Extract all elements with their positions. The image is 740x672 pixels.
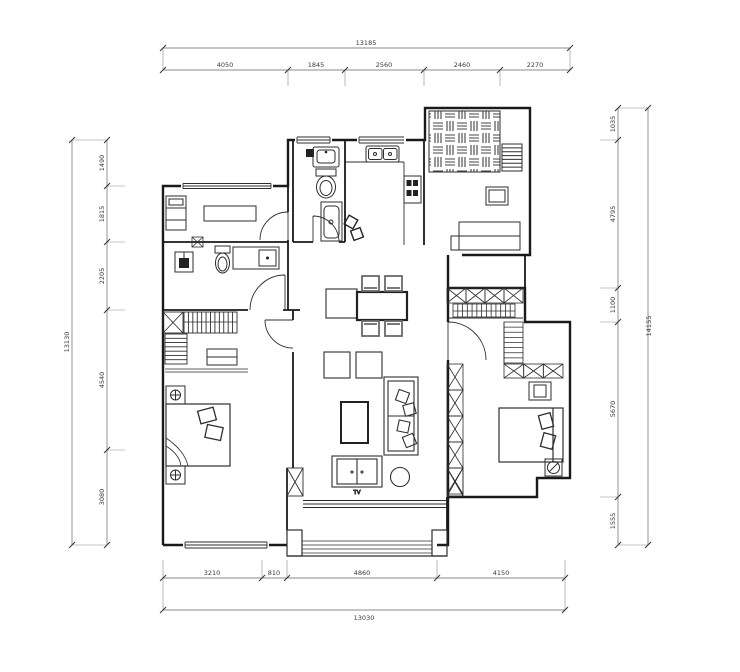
- washbasin-icon: [313, 147, 339, 167]
- dim-bottom-3: 4860: [354, 569, 371, 577]
- living-room: TV: [324, 352, 418, 496]
- nightstand-top: [166, 386, 185, 404]
- partition-lines: [345, 162, 523, 364]
- dim-right-3: 1100: [609, 297, 617, 314]
- balcony-post-left: [287, 530, 302, 556]
- toilet2-icon: [215, 246, 230, 273]
- dining-chairs: [362, 276, 402, 336]
- dim-left-4: 4540: [98, 372, 106, 389]
- wardrobe-top-hatch: [447, 288, 523, 303]
- bench: [451, 222, 520, 250]
- bathroom1-fixtures: [306, 147, 342, 241]
- dim-top-1: 4050: [217, 61, 234, 69]
- round-side-table: [391, 468, 410, 487]
- door-bathroom2: [250, 275, 285, 310]
- dim-right-total: 14155: [645, 316, 653, 337]
- dim-bottom-4: 4150: [493, 569, 510, 577]
- dimension-ticks: [69, 45, 651, 613]
- window-study: [181, 181, 273, 191]
- floor-plan-sheet: 4050 1845 2560 2460 2270 13185 3210 810 …: [0, 0, 740, 672]
- dining-table: [357, 292, 407, 320]
- dim-bottom-2: 810: [268, 569, 280, 577]
- armchair-left: [324, 352, 350, 378]
- radiator: [165, 334, 187, 364]
- kitchen-fixtures: [366, 146, 421, 203]
- doors: [250, 212, 486, 360]
- window-kitchen: [357, 135, 406, 145]
- folding-door-panels: [344, 215, 363, 240]
- dimension-lines: 4050 1845 2560 2460 2270 13185 3210 810 …: [63, 39, 653, 622]
- study-furniture: [166, 196, 256, 230]
- nightstand-bottom: [166, 466, 185, 484]
- coffee-table: [341, 402, 368, 443]
- wall-column-row: [447, 364, 463, 494]
- balcony-window: [302, 541, 432, 553]
- closet-row-hatch: [504, 364, 563, 378]
- pillar-left-hatch: [287, 468, 303, 496]
- dim-right-1: 1035: [609, 116, 617, 133]
- sliding-door: [303, 501, 447, 508]
- bedroom2: [447, 288, 563, 494]
- shoe-cabinet: [502, 144, 522, 171]
- dining-area: [326, 276, 407, 336]
- bed-master: [166, 404, 230, 466]
- study-desk: [204, 206, 256, 221]
- dim-left-1: 1490: [98, 155, 106, 172]
- vanity-counter: [233, 247, 279, 269]
- door-study: [260, 212, 288, 240]
- sofa: [384, 377, 418, 455]
- dim-bottom-total: 13030: [354, 614, 375, 622]
- closet-side: [504, 322, 523, 363]
- column-hatch: [163, 312, 183, 333]
- washing-machine-icon: [175, 252, 193, 272]
- wardrobe-hanging: [184, 312, 237, 333]
- dim-top-4: 2460: [454, 61, 471, 69]
- tile-floor-hatch: [429, 111, 500, 172]
- balcony-post-right: [432, 530, 447, 556]
- dim-top-2: 1845: [308, 61, 325, 69]
- master-bedroom: [163, 312, 248, 484]
- armchair-right: [356, 352, 382, 378]
- dim-top-total: 13185: [356, 39, 377, 47]
- dim-left-total: 13130: [63, 332, 71, 353]
- entry-terrace: [429, 111, 522, 250]
- balcony: [287, 468, 463, 556]
- sideboard: [326, 289, 357, 318]
- dresser: [207, 349, 237, 365]
- dim-top-3: 2560: [376, 61, 393, 69]
- wardrobe-hanging-clothes: [453, 304, 515, 317]
- bed-bedroom2: [499, 408, 563, 462]
- stove-icon: [404, 176, 421, 203]
- tv-cabinet: [332, 456, 382, 487]
- dim-top-5: 2270: [527, 61, 544, 69]
- dim-right-2: 4795: [609, 206, 617, 223]
- window-bathroom: [295, 135, 332, 145]
- floor-plan-drawing: 4050 1845 2560 2460 2270 13185 3210 810 …: [0, 0, 740, 672]
- pillar-right-hatch: [447, 468, 463, 496]
- dim-left-2: 1815: [98, 206, 106, 223]
- shelf: [165, 369, 248, 372]
- toilet-icon: [316, 169, 336, 198]
- dimension-chain-lines: [72, 48, 648, 610]
- dim-right-4: 5670: [609, 401, 617, 418]
- dim-left-5: 3080: [98, 489, 106, 506]
- dimension-extension-lines: [72, 48, 648, 610]
- side-table: [486, 187, 508, 205]
- door-bedroom2: [448, 322, 486, 360]
- window-master-bedroom: [183, 540, 269, 550]
- dim-left-3: 2205: [98, 268, 106, 285]
- interior-wall: [163, 140, 525, 530]
- dim-bottom-1: 3210: [204, 569, 221, 577]
- kitchen-sink-icon: [366, 146, 399, 162]
- desk-bedroom2: [529, 382, 551, 400]
- shower-tray-icon: [321, 202, 342, 241]
- door-master-bedroom: [265, 320, 293, 348]
- dim-right-5: 1555: [609, 513, 617, 530]
- tv-label: TV: [352, 490, 360, 496]
